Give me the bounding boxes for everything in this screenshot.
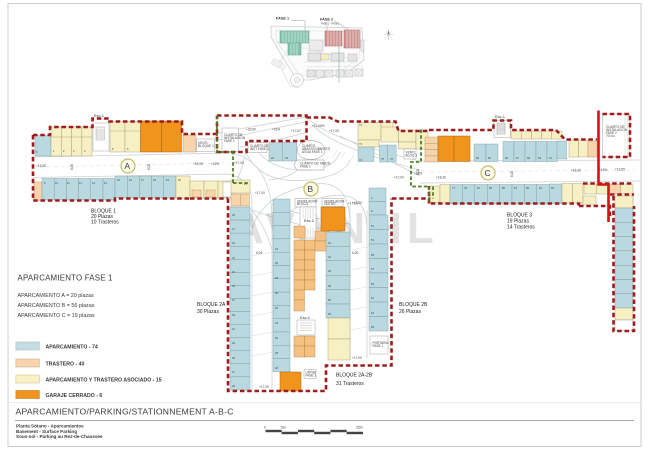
svg-text:APARCAMIENTO C = 19 plazas: APARCAMIENTO C = 19 plazas (18, 313, 96, 319)
svg-text:6,00: 6,00 (510, 171, 514, 177)
svg-text:6,04: 6,04 (256, 251, 262, 255)
svg-text:+11,30%: +11,30% (312, 124, 325, 128)
svg-text:30 Plazas: 30 Plazas (197, 309, 219, 315)
svg-text:+16%: +16% (211, 162, 219, 166)
svg-text:BLOQUE 2A-2B: BLOQUE 2A-2B (336, 373, 373, 379)
svg-text:10 Trasteros: 10 Trasteros (91, 220, 119, 226)
svg-text:+20,50: +20,50 (246, 128, 256, 132)
svg-text:B: B (308, 184, 314, 194)
svg-text:APARCAMIENTO - 74: APARCAMIENTO - 74 (46, 345, 98, 351)
svg-text:31 Trasteros: 31 Trasteros (336, 381, 364, 387)
svg-text:+19,55: +19,55 (615, 168, 625, 172)
svg-text:Basement - Surface Parking: Basement - Surface Parking (16, 429, 77, 434)
svg-text:AGUA FASE 1: AGUA FASE 1 (302, 150, 323, 154)
svg-text:+17,00: +17,00 (394, 176, 404, 180)
svg-text:FASE 1: FASE 1 (306, 374, 317, 378)
svg-text:FASE 2: FASE 2 (320, 18, 333, 22)
svg-text:+15,55: +15,55 (36, 164, 46, 168)
svg-text:26 Plazas: 26 Plazas (399, 309, 421, 315)
svg-text:TRASTERO - 40: TRASTERO - 40 (46, 362, 85, 368)
svg-text:25m: 25m (356, 426, 363, 430)
svg-text:Esc.1: Esc.1 (300, 315, 311, 320)
svg-text:+17,00: +17,00 (352, 201, 362, 205)
svg-text:FASE 1: FASE 1 (224, 139, 235, 143)
svg-text:GARAJE CERRADO - 6: GARAJE CERRADO - 6 (46, 393, 103, 399)
svg-text:6,00: 6,00 (416, 169, 420, 175)
svg-text:INST FASE 1: INST FASE 1 (250, 147, 269, 151)
svg-text:+17,00: +17,00 (329, 129, 339, 133)
svg-text:+16%: +16% (599, 168, 607, 172)
svg-text:A: A (125, 161, 131, 171)
svg-text:Sous-sol - Parking au Rez-de-C: Sous-sol - Parking au Rez-de-Chaussée (16, 434, 103, 439)
svg-text:FASE 1: FASE 1 (373, 344, 384, 348)
svg-text:+17,00: +17,00 (234, 161, 244, 165)
svg-text:6,00: 6,00 (352, 251, 358, 255)
svg-text:6,00: 6,00 (147, 164, 151, 170)
svg-text:Planta Sótano - Aparcamientos: Planta Sótano - Aparcamientos (16, 424, 84, 429)
svg-text:APARCAMIENTO FASE 1: APARCAMIENTO FASE 1 (18, 274, 113, 283)
svg-text:APARCAMIENTO Y TRASTERO ASOCIA: APARCAMIENTO Y TRASTERO ASOCIADO - 15 (46, 378, 162, 384)
svg-text:5m: 5m (281, 426, 286, 430)
svg-text:BLOQUE 1: BLOQUE 1 (198, 144, 214, 148)
svg-text:+18,30: +18,30 (571, 169, 581, 173)
svg-text:APARCAMIENTO B = 56 plazas: APARCAMIENTO B = 56 plazas (18, 303, 95, 309)
svg-text:BLOCO: BLOCO (297, 202, 309, 206)
svg-text:+18,30: +18,30 (436, 176, 446, 180)
svg-text:0: 0 (264, 426, 266, 430)
svg-text:+17,00: +17,00 (352, 356, 362, 360)
svg-text:FASE 1: FASE 1 (300, 165, 311, 169)
svg-text:FASE 1: FASE 1 (276, 17, 289, 21)
svg-text:Esc.1: Esc.1 (94, 113, 105, 118)
svg-text:+17,67: +17,67 (291, 129, 301, 133)
svg-text:14 Trasteros: 14 Trasteros (507, 225, 535, 231)
svg-text:Esc.2: Esc.2 (304, 218, 315, 223)
svg-text:OUTRO: OUTRO (324, 202, 336, 206)
svg-text:+17,00: +17,00 (255, 191, 265, 195)
svg-text:Esc.1: Esc.1 (495, 114, 506, 119)
svg-text:BLOQUE 2A: BLOQUE 2A (197, 302, 226, 308)
svg-text:70 c/u: 70 c/u (606, 134, 615, 138)
svg-text:APARCAMIENTO A = 20 plazas: APARCAMIENTO A = 20 plazas (18, 293, 95, 299)
svg-text:BLOQUE 2B: BLOQUE 2B (399, 302, 428, 308)
svg-text:BLOQ 3: BLOQ 3 (406, 154, 418, 158)
svg-text:APARCAMIENTO/PARKING/STATIONNE: APARCAMIENTO/PARKING/STATIONNEMENT A-B-C (16, 407, 234, 417)
svg-text:+16%: +16% (272, 128, 280, 132)
svg-text:+17,00: +17,00 (259, 385, 269, 389)
svg-text:C: C (485, 168, 491, 178)
svg-text:6,00: 6,00 (70, 164, 74, 170)
svg-text:+15,95: +15,95 (193, 162, 203, 166)
